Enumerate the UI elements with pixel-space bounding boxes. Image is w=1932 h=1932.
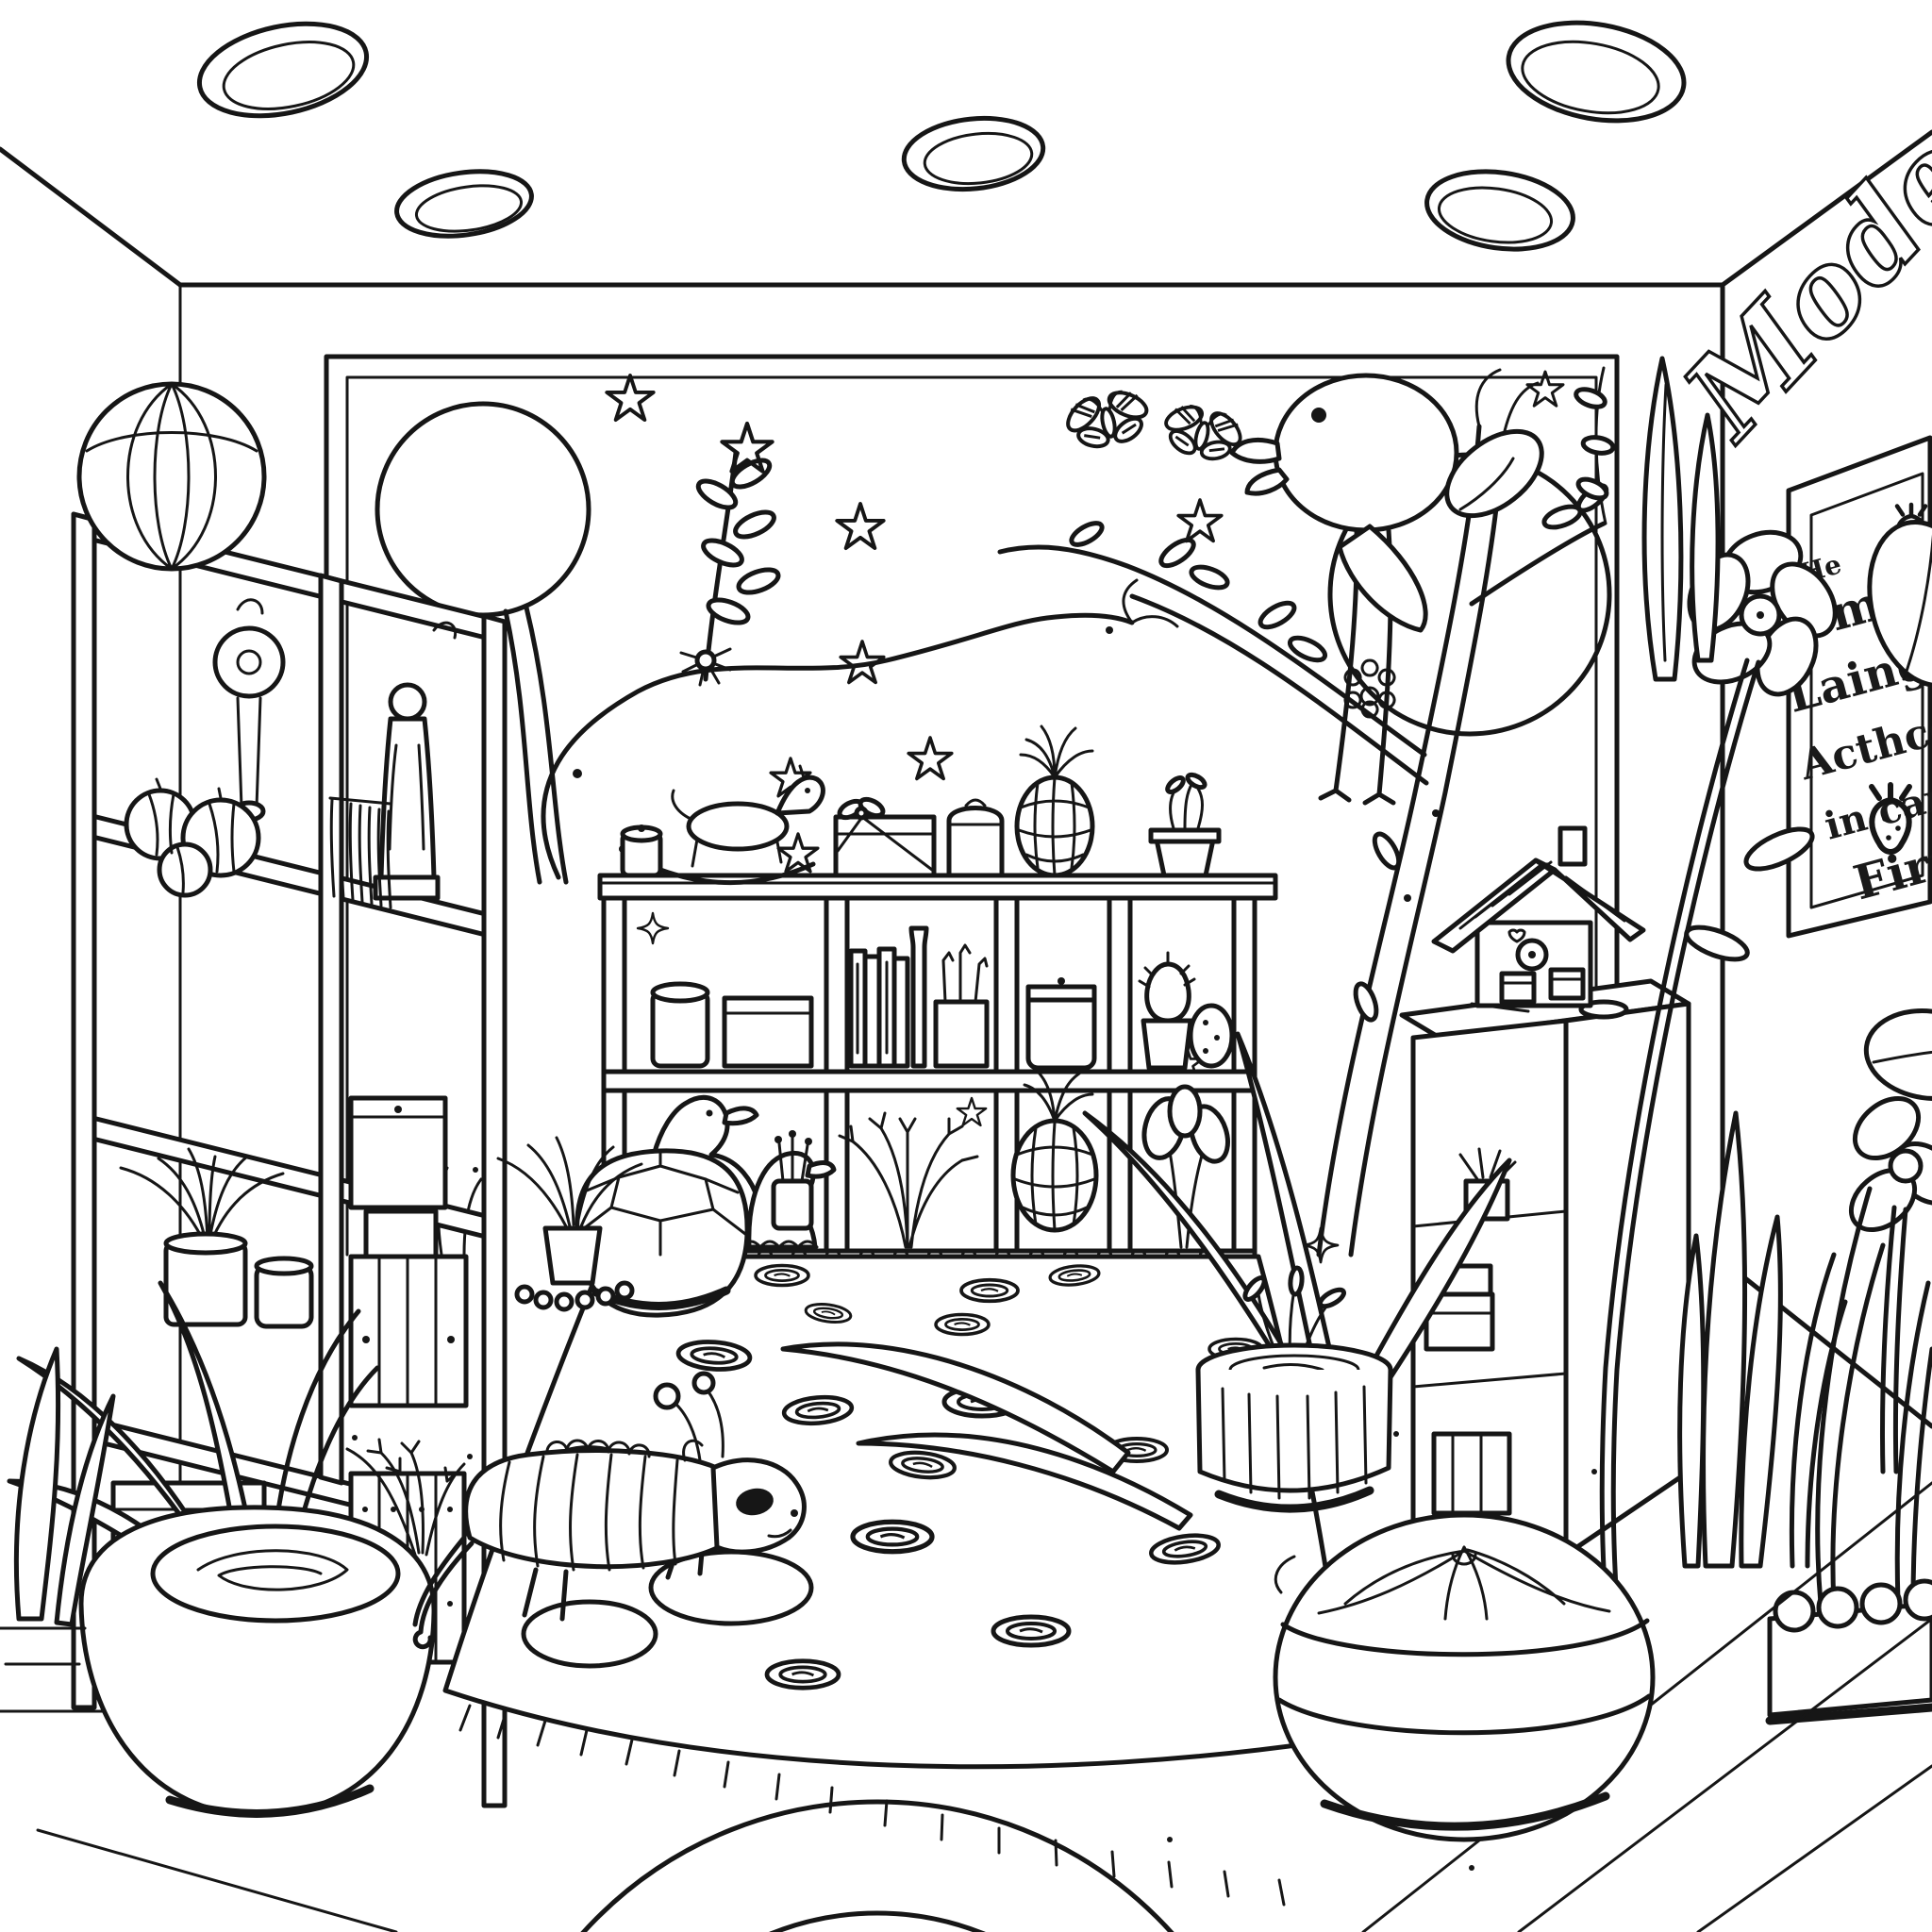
star <box>607 375 653 420</box>
ceiling-light <box>901 111 1047 195</box>
star <box>841 641 884 682</box>
beach-ball <box>79 384 264 569</box>
paw-pad <box>524 1602 656 1666</box>
antenna-ball <box>656 1385 678 1407</box>
disco-pineapple <box>1017 726 1092 875</box>
star <box>908 738 952 778</box>
butterfly <box>1058 381 1158 457</box>
moon-circle <box>377 404 589 615</box>
jar <box>653 984 708 1066</box>
antenna-ball <box>694 1374 713 1392</box>
leaf-sprig <box>681 453 781 685</box>
storage-box <box>351 1098 445 1207</box>
ceiling-light <box>1422 163 1578 258</box>
round-pot <box>257 1258 311 1326</box>
round-rug <box>481 1802 1274 1932</box>
spotted-egg <box>1191 1006 1232 1066</box>
disco-pineapple <box>1013 1072 1096 1230</box>
tree-trunk <box>506 608 566 882</box>
cabinet-box <box>1434 1434 1509 1513</box>
books <box>851 949 908 1066</box>
jar <box>949 800 1002 875</box>
ceiling-light <box>191 9 375 129</box>
ceiling-light <box>1501 9 1692 133</box>
jar <box>1028 977 1094 1068</box>
star <box>837 504 883 548</box>
pendant-ornament <box>215 600 283 820</box>
ceiling-light <box>392 163 536 243</box>
birdhouse <box>1434 828 1643 1006</box>
star <box>1178 500 1222 541</box>
rocking-horse-toy <box>660 766 823 883</box>
coloring-page: Mode He Come Laing Acthce in care Firm <box>0 0 1932 1932</box>
pumpkins <box>126 779 258 895</box>
bottle <box>911 928 926 1066</box>
brush-vase <box>774 1130 812 1228</box>
scene-drawing: Mode He Come Laing Acthce in care Firm <box>0 0 1932 1932</box>
sparkle <box>638 913 668 943</box>
cactus-pot <box>1140 953 1194 1068</box>
gift-box <box>836 796 934 875</box>
ceiling-lights <box>191 9 1691 258</box>
pencil-cup <box>936 945 987 1066</box>
jar <box>623 824 660 875</box>
palm-plant <box>840 1113 977 1247</box>
potted-plant <box>1151 773 1219 875</box>
tufted-ottoman <box>1275 1515 1653 1840</box>
storage-box <box>724 998 811 1066</box>
star <box>958 1098 986 1125</box>
round-bird <box>1232 375 1557 803</box>
